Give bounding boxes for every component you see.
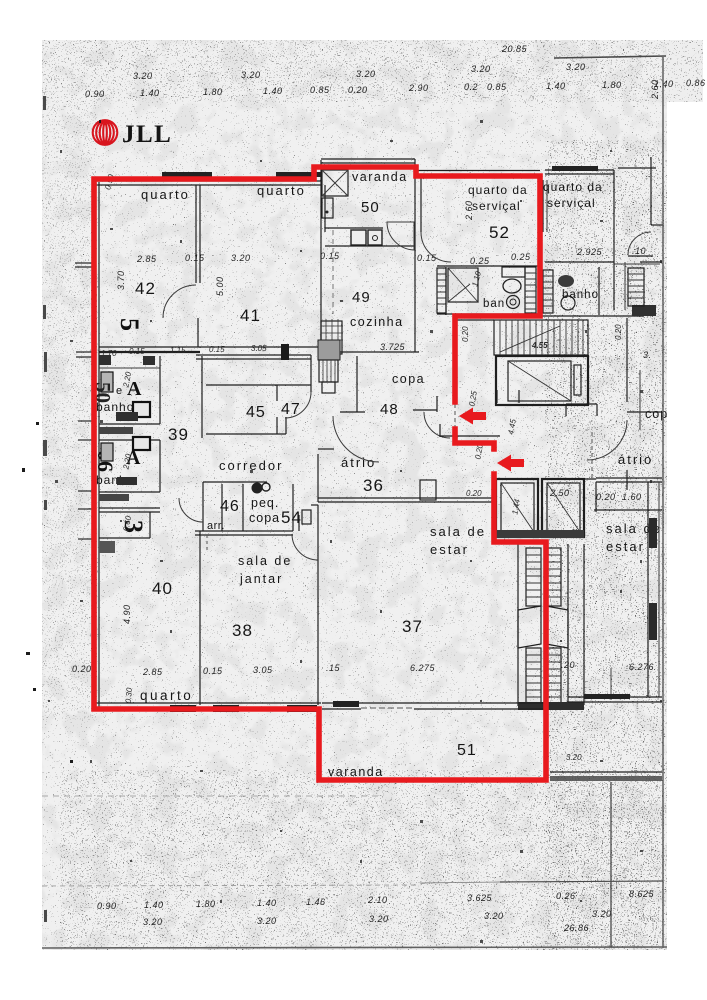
svg-text:0.15: 0.15 bbox=[185, 253, 205, 263]
svg-text:46: 46 bbox=[220, 498, 240, 515]
svg-text:3.20: 3.20 bbox=[241, 70, 261, 80]
svg-text:45: 45 bbox=[246, 404, 266, 421]
svg-text:quarto: quarto bbox=[257, 183, 306, 198]
svg-text:38: 38 bbox=[232, 621, 253, 640]
svg-text:3.05: 3.05 bbox=[251, 344, 267, 353]
svg-text:0.30: 0.30 bbox=[124, 687, 134, 704]
svg-text:0.25: 0.25 bbox=[511, 252, 531, 262]
svg-text:0.2: 0.2 bbox=[464, 82, 478, 92]
svg-text:1.40: 1.40 bbox=[257, 898, 277, 908]
svg-text:3.20: 3.20 bbox=[484, 911, 504, 921]
svg-text:3.725: 3.725 bbox=[380, 342, 406, 352]
svg-text:50: 50 bbox=[361, 199, 380, 216]
svg-text:2.60: 2.60 bbox=[650, 79, 660, 100]
svg-text:2.85: 2.85 bbox=[142, 667, 163, 677]
svg-text:40: 40 bbox=[152, 579, 173, 598]
svg-text:3.20: 3.20 bbox=[257, 916, 277, 926]
svg-text:3.: 3. bbox=[643, 350, 652, 360]
svg-text:0.85: 0.85 bbox=[310, 85, 330, 95]
svg-text:0.15: 0.15 bbox=[129, 347, 145, 356]
svg-text:copa: copa bbox=[249, 511, 280, 525]
svg-text:6.275: 6.275 bbox=[410, 663, 436, 673]
svg-text:2.10: 2.10 bbox=[367, 895, 388, 905]
svg-text:2.85: 2.85 bbox=[136, 254, 157, 264]
svg-text:2.925: 2.925 bbox=[576, 247, 603, 257]
svg-text:1.40: 1.40 bbox=[546, 81, 566, 91]
svg-text:0.20: 0.20 bbox=[466, 489, 482, 498]
svg-text:3.20: 3.20 bbox=[566, 62, 586, 72]
svg-text:3.20: 3.20 bbox=[369, 914, 389, 924]
svg-text:2.50: 2.50 bbox=[549, 488, 570, 498]
svg-text:0.15: 0.15 bbox=[209, 345, 225, 354]
svg-text:8.625: 8.625 bbox=[629, 889, 655, 899]
svg-text:41: 41 bbox=[240, 306, 261, 325]
svg-text:3.625: 3.625 bbox=[467, 893, 493, 903]
svg-text:1.60: 1.60 bbox=[622, 492, 642, 502]
svg-text:0.90: 0.90 bbox=[97, 901, 117, 911]
svg-text:26.86: 26.86 bbox=[563, 923, 589, 933]
svg-text:4.90: 4.90 bbox=[122, 604, 132, 624]
svg-text:cop: cop bbox=[645, 407, 668, 421]
svg-text:0.90: 0.90 bbox=[85, 89, 105, 99]
svg-text:1.40: 1.40 bbox=[263, 86, 283, 96]
svg-text:20.85: 20.85 bbox=[501, 44, 528, 54]
svg-text:ban: ban bbox=[483, 298, 505, 310]
svg-text:0.25: 0.25 bbox=[470, 256, 490, 266]
svg-text:3.20: 3.20 bbox=[143, 917, 163, 927]
svg-text:3.20: 3.20 bbox=[592, 909, 612, 919]
svg-text:2.60: 2.60 bbox=[464, 200, 474, 221]
svg-text:átrio: átrio bbox=[618, 452, 653, 467]
svg-text:1.40: 1.40 bbox=[140, 88, 160, 98]
svg-text:.10: .10 bbox=[632, 246, 646, 256]
svg-text:52: 52 bbox=[489, 223, 510, 242]
svg-text:3.20: 3.20 bbox=[133, 71, 153, 81]
svg-text:quarto da: quarto da bbox=[543, 180, 603, 194]
svg-text:banho: banho bbox=[562, 289, 599, 301]
svg-text:corredor: corredor bbox=[219, 458, 283, 473]
svg-text:estar: estar bbox=[430, 542, 469, 557]
svg-text:varanda: varanda bbox=[328, 765, 384, 779]
svg-text:1.15: 1.15 bbox=[170, 346, 186, 355]
svg-text:3.20: 3.20 bbox=[356, 69, 376, 79]
svg-text:0.20: 0.20 bbox=[461, 326, 470, 342]
svg-text:quarto: quarto bbox=[140, 688, 193, 703]
svg-text:0.20: 0.20 bbox=[72, 664, 92, 674]
svg-text:arr.: arr. bbox=[207, 520, 225, 532]
svg-text:47: 47 bbox=[281, 401, 301, 418]
svg-text:3.20: 3.20 bbox=[231, 253, 251, 263]
svg-text:1.40: 1.40 bbox=[144, 900, 164, 910]
svg-text:51: 51 bbox=[457, 742, 477, 759]
svg-text:JLL: JLL bbox=[122, 121, 172, 148]
svg-text:0.85: 0.85 bbox=[487, 82, 507, 92]
svg-text:0.20: 0.20 bbox=[614, 324, 623, 340]
svg-text:4.55: 4.55 bbox=[531, 341, 548, 350]
svg-text:42: 42 bbox=[135, 279, 156, 298]
svg-text:sala de: sala de bbox=[430, 524, 486, 539]
svg-text:0.26: 0.26 bbox=[556, 891, 576, 901]
svg-text:serviçal: serviçal bbox=[472, 199, 521, 213]
svg-text:3.70: 3.70 bbox=[116, 270, 126, 290]
svg-text:varanda: varanda bbox=[352, 170, 408, 184]
svg-text:36: 36 bbox=[363, 476, 384, 495]
svg-text:sala de: sala de bbox=[238, 554, 292, 568]
svg-text:serviçal: serviçal bbox=[547, 196, 596, 210]
svg-text:cozinha: cozinha bbox=[350, 315, 404, 329]
svg-text:0.86: 0.86 bbox=[686, 78, 706, 88]
svg-text:0.15: 0.15 bbox=[320, 251, 340, 261]
svg-text:0.20: 0.20 bbox=[596, 492, 616, 502]
svg-text:quarto: quarto bbox=[141, 187, 190, 202]
svg-text:jantar: jantar bbox=[239, 572, 283, 586]
svg-text:5.00: 5.00 bbox=[215, 276, 225, 296]
svg-text:5: 5 bbox=[115, 318, 144, 331]
svg-text:39: 39 bbox=[168, 425, 189, 444]
svg-text:quarto da: quarto da bbox=[468, 183, 528, 197]
svg-text:3.20: 3.20 bbox=[566, 753, 582, 762]
svg-text:.15: .15 bbox=[326, 663, 341, 673]
svg-text:peq.: peq. bbox=[251, 496, 279, 510]
svg-text:estar: estar bbox=[606, 539, 645, 554]
svg-text:1.80: 1.80 bbox=[203, 87, 223, 97]
svg-text:3.05: 3.05 bbox=[253, 665, 273, 675]
svg-text:2.90: 2.90 bbox=[408, 83, 429, 93]
svg-text:48: 48 bbox=[380, 401, 399, 418]
svg-text:37: 37 bbox=[402, 617, 423, 636]
svg-text:6.276: 6.276 bbox=[629, 662, 654, 672]
svg-text:3.20: 3.20 bbox=[471, 64, 491, 74]
svg-text:0.15: 0.15 bbox=[417, 253, 437, 263]
svg-text:1.80: 1.80 bbox=[196, 899, 216, 909]
svg-text:0.15: 0.15 bbox=[203, 666, 223, 676]
svg-text:copa: copa bbox=[392, 372, 425, 386]
svg-text:49: 49 bbox=[352, 289, 371, 306]
svg-text:1.46: 1.46 bbox=[306, 897, 326, 907]
svg-text:0.20: 0.20 bbox=[348, 85, 368, 95]
svg-text:1.80: 1.80 bbox=[602, 80, 622, 90]
